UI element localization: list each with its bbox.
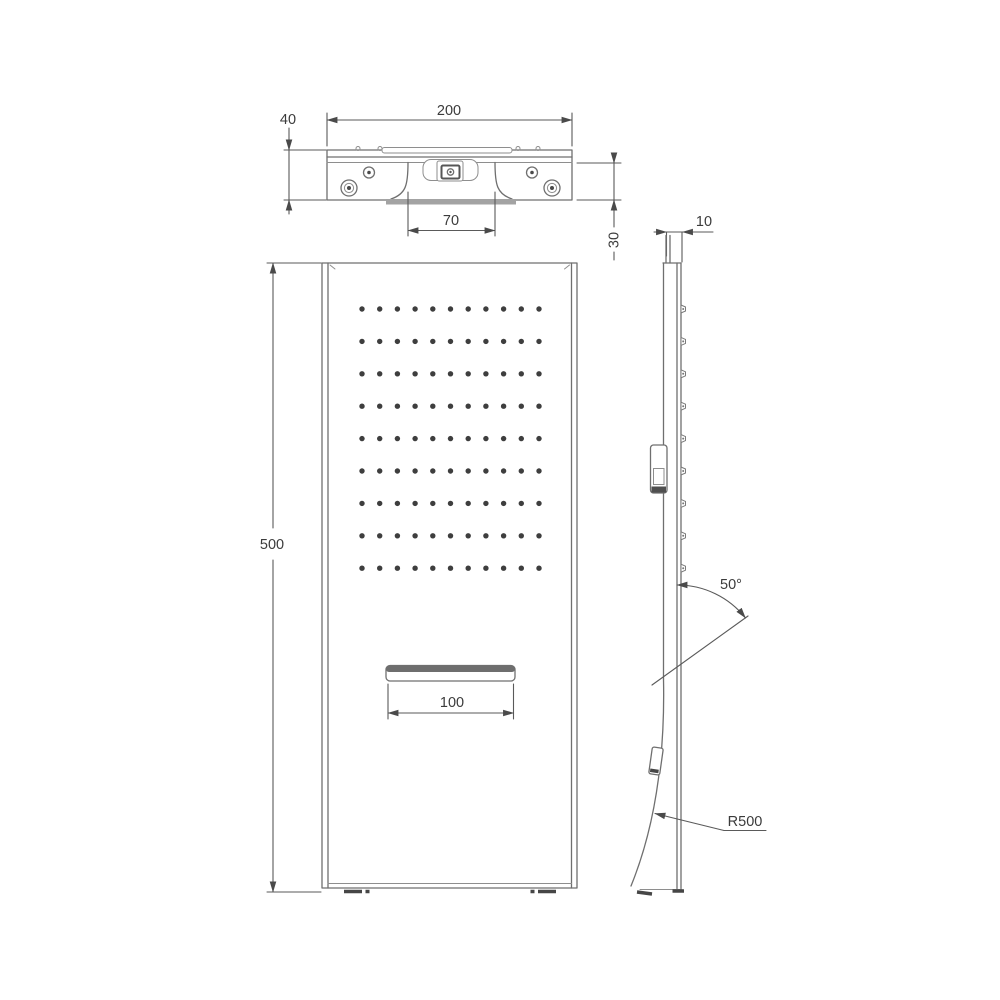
nozzle-dot xyxy=(501,404,506,409)
nozzle-dot xyxy=(448,566,453,571)
front-view: 500 100 xyxy=(260,263,577,892)
nozzle-dot xyxy=(448,436,453,441)
nozzle-dot xyxy=(448,306,453,311)
dimension-200: 200 xyxy=(327,103,572,146)
nozzle-dot xyxy=(448,404,453,409)
nozzle-dot xyxy=(412,533,417,538)
nozzle-dot xyxy=(359,501,364,506)
nozzle-dot xyxy=(519,306,524,311)
nozzle-dot xyxy=(377,306,382,311)
nozzle-dot xyxy=(501,533,506,538)
nozzle-dot xyxy=(412,501,417,506)
nozzle-dot xyxy=(448,533,453,538)
nozzle-dot xyxy=(519,404,524,409)
dimension-30: 30 xyxy=(577,153,623,260)
spray-angle-annotation: 50° xyxy=(652,577,748,685)
nozzle-dot xyxy=(412,566,417,571)
dimension-10: 10 xyxy=(654,214,713,262)
radius-annotation: R500 xyxy=(655,814,766,831)
connector-port-dot xyxy=(449,171,451,173)
nozzle-dot xyxy=(395,339,400,344)
nozzle-dot xyxy=(483,339,488,344)
nozzle-dot xyxy=(430,436,435,441)
nozzle-dot xyxy=(448,371,453,376)
nozzle-dot xyxy=(536,339,541,344)
nozzle-dot xyxy=(536,566,541,571)
dimension-label: 40 xyxy=(280,112,296,128)
nozzle-dot xyxy=(466,533,471,538)
nozzle-dot xyxy=(359,371,364,376)
dimension-label: 500 xyxy=(260,537,284,553)
top-view: 200 40 70 30 xyxy=(280,103,623,260)
nozzle-dot xyxy=(377,566,382,571)
nozzle-dot xyxy=(466,566,471,571)
nozzle-dot xyxy=(501,339,506,344)
dimension-label: 30 xyxy=(607,232,623,248)
nozzle-dot xyxy=(412,404,417,409)
nozzle-dot xyxy=(430,501,435,506)
panel-outline xyxy=(322,263,577,888)
drawing-page: 200 40 70 30 xyxy=(0,0,1000,1000)
nozzle-dot xyxy=(448,468,453,473)
nozzle-dot xyxy=(395,533,400,538)
side-view: 10 50° xyxy=(631,214,766,894)
nozzle-dot xyxy=(359,339,364,344)
nozzle-dot xyxy=(395,371,400,376)
nozzle-dot xyxy=(466,404,471,409)
radius-label: R500 xyxy=(728,814,763,830)
nozzle-bumps xyxy=(681,305,686,572)
nozzle-dot xyxy=(519,468,524,473)
nozzle-profile-dot xyxy=(682,405,684,407)
nozzle-dot xyxy=(536,533,541,538)
inlet-connector xyxy=(423,160,478,182)
nozzle-dot xyxy=(466,501,471,506)
nozzle-dot xyxy=(501,371,506,376)
angle-ray xyxy=(652,616,748,685)
nozzle-dot xyxy=(377,339,382,344)
nozzle-dot xyxy=(395,306,400,311)
nozzle-dot xyxy=(412,468,417,473)
nozzle-dot xyxy=(430,371,435,376)
nozzle-dot xyxy=(448,339,453,344)
nozzle-profile-dot xyxy=(682,470,684,472)
nozzle-dot xyxy=(519,371,524,376)
nozzle-dot xyxy=(483,436,488,441)
nozzle-dot xyxy=(519,436,524,441)
dimension-40: 40 xyxy=(280,112,326,214)
supply-box-window xyxy=(654,469,665,485)
nozzle-dot xyxy=(501,501,506,506)
nozzle-dot xyxy=(377,436,382,441)
slot-opening-band xyxy=(386,666,515,673)
radius-leader-line xyxy=(655,814,724,831)
nozzle-dot xyxy=(483,404,488,409)
nozzle-dot xyxy=(501,468,506,473)
wall-flange xyxy=(666,236,670,264)
nozzle-dot xyxy=(359,533,364,538)
strip-inset-plate xyxy=(382,148,512,154)
nozzle-dot xyxy=(483,533,488,538)
nozzle-dot xyxy=(501,306,506,311)
nozzle-dot xyxy=(519,533,524,538)
nozzle-dot xyxy=(412,371,417,376)
nozzle-dot xyxy=(377,501,382,506)
nozzle-dot xyxy=(483,566,488,571)
nozzle-dot xyxy=(377,371,382,376)
nozzle-dot xyxy=(483,501,488,506)
nozzle-dot xyxy=(519,339,524,344)
nozzle-dot xyxy=(519,501,524,506)
nozzle-dot xyxy=(412,436,417,441)
panel-profile xyxy=(631,263,684,894)
dimension-label: 70 xyxy=(443,213,459,229)
nozzle-dot xyxy=(483,371,488,376)
nozzle-dot xyxy=(466,306,471,311)
dimension-label: 100 xyxy=(440,695,464,711)
nozzle-dot xyxy=(536,436,541,441)
nozzle-profile-dot xyxy=(682,567,684,569)
recess-gray-strip xyxy=(386,199,516,205)
nozzle-dot xyxy=(377,533,382,538)
supply-box xyxy=(651,445,668,493)
nozzle-profile-dot xyxy=(682,373,684,375)
nozzle-dot xyxy=(430,306,435,311)
nozzle-dot xyxy=(501,436,506,441)
nozzle-dot xyxy=(466,371,471,376)
nozzle-dot xyxy=(466,468,471,473)
nozzle-dot xyxy=(501,566,506,571)
nozzle-dot xyxy=(483,468,488,473)
nozzle-dot xyxy=(395,404,400,409)
nozzle-dot xyxy=(430,468,435,473)
dimension-label: 10 xyxy=(696,214,712,230)
nozzle-dot xyxy=(359,566,364,571)
profile-foot-pad xyxy=(637,892,652,894)
technical-drawing: 200 40 70 30 xyxy=(0,0,1000,1000)
nozzle-dot xyxy=(536,306,541,311)
nozzle-dot xyxy=(430,533,435,538)
nozzle-dot xyxy=(430,404,435,409)
nozzle-dot xyxy=(359,436,364,441)
nozzle-dot xyxy=(466,436,471,441)
nozzle-profile-dot xyxy=(682,535,684,537)
nozzle-dot xyxy=(483,306,488,311)
holder-box xyxy=(649,747,664,775)
nozzle-dot xyxy=(359,404,364,409)
nozzle-dot xyxy=(359,306,364,311)
profile-curved-face xyxy=(631,679,664,886)
nozzle-dot xyxy=(395,436,400,441)
holder-base xyxy=(650,770,658,771)
nozzle-dot xyxy=(377,404,382,409)
nozzle-dot xyxy=(536,468,541,473)
nozzle-profile-dot xyxy=(682,340,684,342)
supply-box-base xyxy=(652,487,667,493)
nozzle-dot xyxy=(412,339,417,344)
nozzle-profile-dot xyxy=(682,308,684,310)
nozzle-profile-dot xyxy=(682,438,684,440)
nozzle-dot xyxy=(395,468,400,473)
nozzle-dot xyxy=(395,501,400,506)
nozzle-dot xyxy=(430,339,435,344)
nozzle-dot xyxy=(536,404,541,409)
nozzle-dot xyxy=(359,468,364,473)
nozzle-dot xyxy=(536,501,541,506)
nozzle-dot xyxy=(395,566,400,571)
dimension-label: 200 xyxy=(437,103,461,119)
nozzle-dot xyxy=(412,306,417,311)
dimension-500: 500 xyxy=(260,263,321,892)
nozzle-dot xyxy=(519,566,524,571)
nozzle-dot xyxy=(377,468,382,473)
nozzle-dot xyxy=(448,501,453,506)
angle-label: 50° xyxy=(720,577,742,593)
nozzle-dot xyxy=(466,339,471,344)
nozzle-dot xyxy=(536,371,541,376)
nozzle-profile-dot xyxy=(682,502,684,504)
nozzle-dot xyxy=(430,566,435,571)
